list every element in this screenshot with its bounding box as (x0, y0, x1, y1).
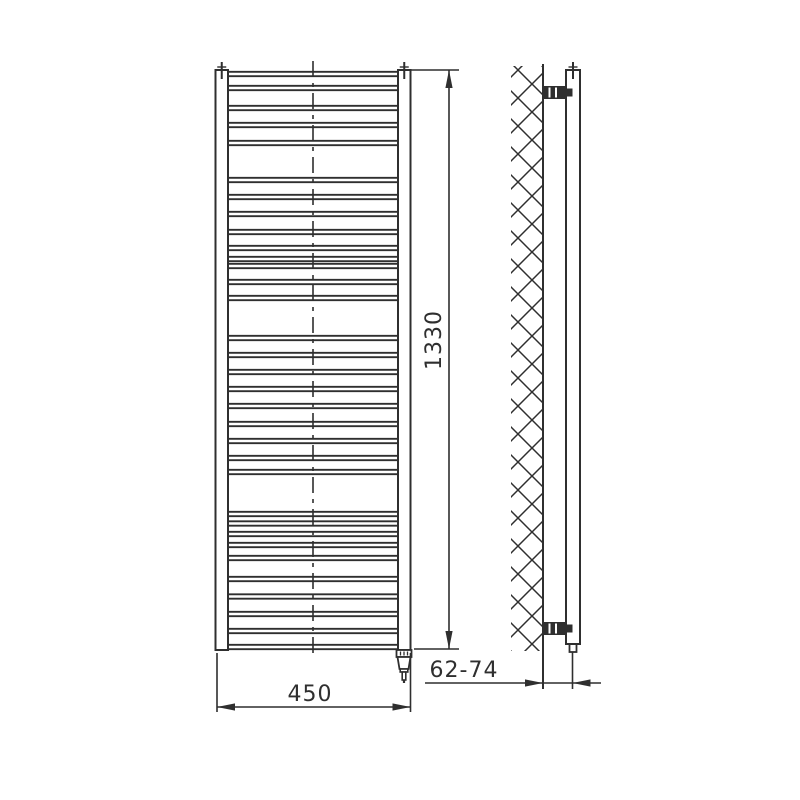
dimension-arrow (393, 703, 411, 710)
dimension-arrow (525, 679, 543, 686)
front-view (216, 61, 412, 683)
dimension-wall-distance: 62-74 (425, 652, 601, 689)
drawing-canvas: 1330 450 62-74 (0, 0, 800, 800)
bracket-block (543, 622, 566, 635)
wall-hatching (511, 64, 543, 689)
right-rail (398, 70, 411, 650)
bracket-pin (566, 89, 573, 97)
dimension-arrow (217, 703, 235, 710)
dimension-arrow (573, 679, 591, 686)
dimension-arrow (445, 631, 452, 649)
element-stem (402, 672, 406, 680)
bracket-pin (566, 625, 573, 633)
radiator-side-profile (566, 62, 580, 652)
wall-mounting-brackets (543, 86, 573, 635)
dimension-arrow (445, 70, 452, 88)
radiator-technical-drawing: 1330 450 62-74 (0, 0, 800, 800)
dimension-height-label: 1330 (422, 310, 447, 370)
element-body (398, 657, 411, 669)
bracket-block (543, 86, 566, 99)
electric-heating-element-glyph (397, 650, 412, 683)
dimension-height: 1330 (411, 70, 459, 649)
side-tube-foot (570, 644, 577, 652)
dimension-wall-distance-label: 62-74 (430, 658, 499, 683)
side-tube-outline (566, 70, 580, 644)
side-view (511, 62, 580, 689)
left-rail (216, 70, 229, 650)
wall-hatch-area (511, 66, 543, 651)
dimension-width: 450 (217, 653, 411, 712)
dimension-width-label: 450 (288, 682, 333, 707)
